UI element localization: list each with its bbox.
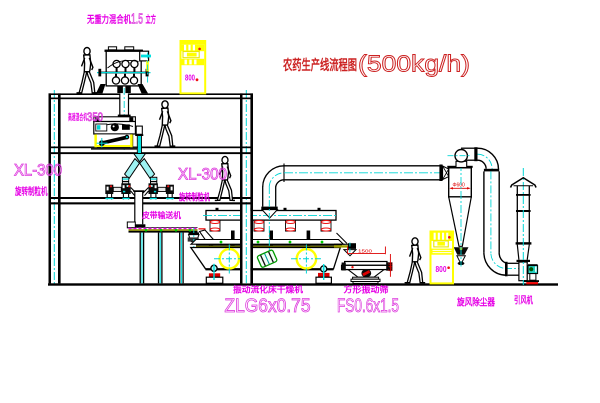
svg-text:振动流化床干燥机: 振动流化床干燥机 xyxy=(233,284,303,294)
svg-text:FS0.6x1.5: FS0.6x1.5 xyxy=(337,296,399,317)
svg-text:ZLG6x0.75: ZLG6x0.75 xyxy=(225,296,311,317)
svg-text:皮带输送机: 皮带输送机 xyxy=(141,210,181,220)
svg-text:540: 540 xyxy=(389,262,395,271)
svg-text:无重力混合机: 无重力混合机 xyxy=(86,13,131,26)
svg-text:350: 350 xyxy=(87,110,103,124)
svg-text:1500: 1500 xyxy=(358,249,372,255)
svg-text:1.5: 1.5 xyxy=(131,11,143,28)
svg-text:立方: 立方 xyxy=(146,13,157,26)
svg-text:XL-300: XL-300 xyxy=(178,165,227,184)
svg-text:引风机: 引风机 xyxy=(514,295,533,307)
svg-text:旋转制粒机: 旋转制粒机 xyxy=(14,185,47,198)
svg-text:XL-300: XL-300 xyxy=(14,161,62,180)
svg-text:方形振动筛: 方形振动筛 xyxy=(344,284,390,294)
svg-text:800: 800 xyxy=(185,73,195,82)
svg-text:旋风除尘器: 旋风除尘器 xyxy=(456,297,495,309)
svg-text:高速混合机: 高速混合机 xyxy=(68,112,87,122)
svg-text:(500kg/h): (500kg/h) xyxy=(358,51,470,77)
svg-text:Φ600: Φ600 xyxy=(453,182,466,188)
svg-text:农药生产线流程图: 农药生产线流程图 xyxy=(282,57,357,73)
svg-text:800: 800 xyxy=(436,265,447,274)
svg-text:旋转制粒机: 旋转制粒机 xyxy=(178,192,210,204)
